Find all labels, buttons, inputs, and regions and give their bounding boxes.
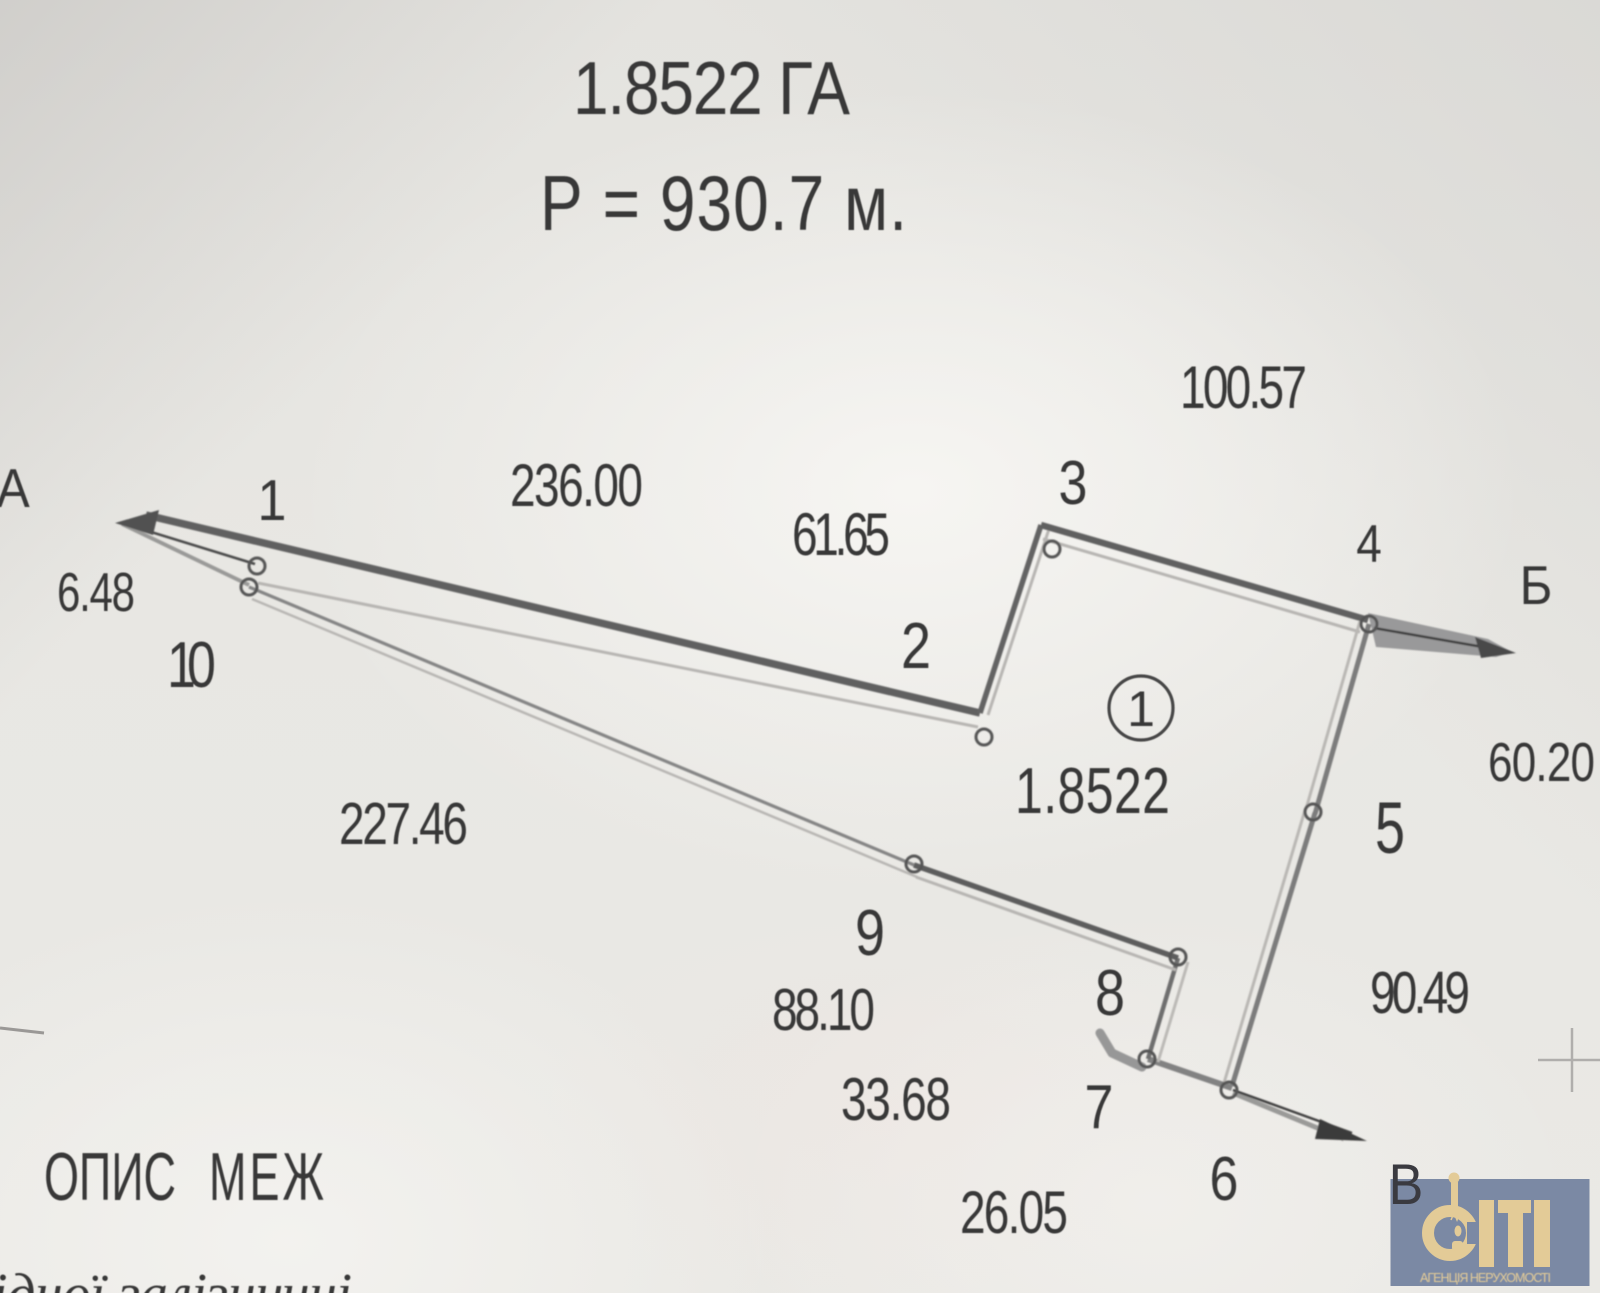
svg-text:88.10: 88.10 — [772, 977, 875, 1043]
svg-text:1: 1 — [1127, 681, 1155, 737]
svg-text:АГЕНЦІЯ НЕРУХОМОСТІ: АГЕНЦІЯ НЕРУХОМОСТІ — [1420, 1271, 1551, 1285]
svg-text:3: 3 — [1059, 449, 1088, 519]
svg-text:6: 6 — [1210, 1145, 1239, 1215]
svg-text:26.05: 26.05 — [960, 1179, 1068, 1247]
svg-text:1: 1 — [258, 469, 287, 533]
svg-text:2: 2 — [901, 609, 931, 682]
svg-text:А: А — [0, 458, 30, 520]
svg-text:7: 7 — [1085, 1073, 1114, 1143]
svg-text:90.49: 90.49 — [1370, 960, 1470, 1026]
svg-text:33.68: 33.68 — [841, 1066, 951, 1134]
svg-text:4: 4 — [1356, 514, 1382, 574]
svg-text:227.46: 227.46 — [339, 791, 468, 857]
svg-text:236.00: 236.00 — [510, 452, 643, 520]
svg-text:Р = 930.7 м.: Р = 930.7 м. — [540, 160, 907, 247]
svg-text:100.57: 100.57 — [1180, 354, 1307, 422]
svg-text:10: 10 — [167, 630, 216, 702]
svg-text:9: 9 — [855, 896, 885, 969]
svg-text:Б: Б — [1520, 555, 1553, 617]
svg-text:В: В — [1389, 1153, 1424, 1217]
svg-text:6.48: 6.48 — [57, 563, 135, 624]
svg-text:1.8522 ГА: 1.8522 ГА — [573, 46, 850, 130]
svg-text:ОПИС: ОПИС — [44, 1140, 176, 1215]
svg-text:61.65: 61.65 — [792, 501, 890, 569]
svg-text:1.8522: 1.8522 — [1015, 756, 1170, 828]
svg-text:МЕЖ: МЕЖ — [209, 1140, 324, 1215]
svg-text:8: 8 — [1095, 956, 1125, 1029]
svg-text:ідної залізничні: ідної залізничні — [0, 1263, 352, 1293]
svg-text:60.20: 60.20 — [1488, 731, 1595, 793]
svg-text:5: 5 — [1375, 787, 1405, 869]
